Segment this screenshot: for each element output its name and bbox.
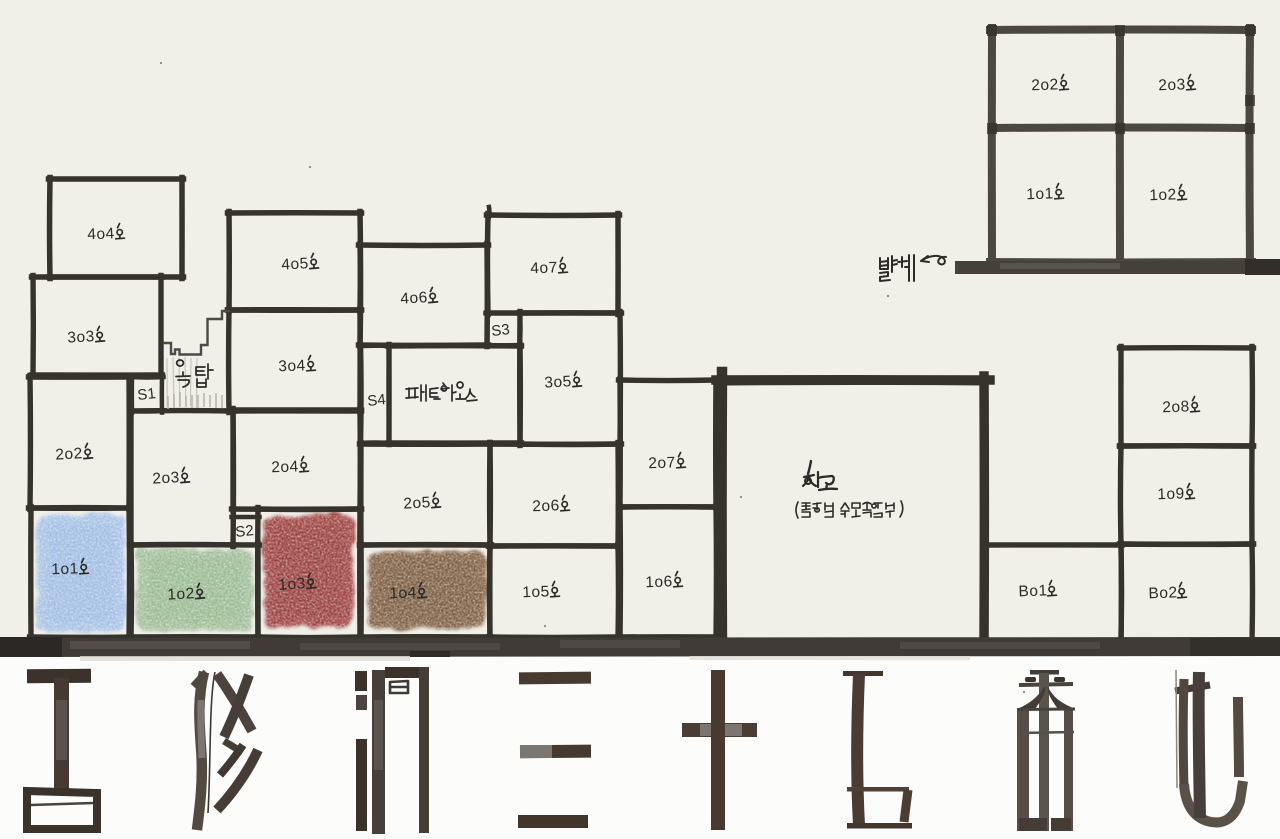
svg-text:1o6: 1o6 [645, 573, 673, 591]
svg-text:1o1: 1o1 [1026, 185, 1054, 203]
svg-text:2o4: 2o4 [271, 458, 299, 476]
svg-text:S3: S3 [491, 321, 511, 340]
svg-text:4o5: 4o5 [281, 255, 309, 273]
svg-text:2o3: 2o3 [152, 469, 180, 487]
svg-text:3o5: 3o5 [544, 373, 572, 391]
svg-text:2o2: 2o2 [55, 445, 83, 463]
svg-text:4o4: 4o4 [87, 225, 115, 243]
svg-text:2o8: 2o8 [1162, 398, 1190, 416]
svg-text:Bo1: Bo1 [1018, 582, 1048, 600]
svg-text:S2: S2 [235, 522, 255, 541]
svg-text:3o3: 3o3 [67, 328, 95, 346]
svg-text:1o3: 1o3 [278, 575, 306, 594]
svg-text:2o5: 2o5 [403, 494, 431, 512]
svg-text:4o6: 4o6 [400, 289, 428, 307]
svg-text:1o9: 1o9 [1157, 485, 1185, 503]
svg-text:S4: S4 [367, 391, 387, 410]
svg-text:Bo2: Bo2 [1148, 584, 1178, 602]
svg-text:2o3: 2o3 [1158, 76, 1186, 94]
svg-text:3o4: 3o4 [278, 357, 306, 375]
svg-text:S1: S1 [137, 385, 157, 404]
svg-text:4o7: 4o7 [530, 259, 558, 277]
svg-text:2o2: 2o2 [1031, 76, 1059, 94]
svg-text:1o5: 1o5 [522, 583, 550, 601]
svg-text:1o2: 1o2 [1149, 186, 1177, 204]
svg-text:2o7: 2o7 [648, 454, 676, 472]
svg-text:1o1: 1o1 [51, 560, 79, 578]
svg-text:1o2: 1o2 [167, 585, 195, 603]
svg-text:1o4: 1o4 [389, 584, 417, 602]
svg-text:2o6: 2o6 [532, 497, 560, 515]
